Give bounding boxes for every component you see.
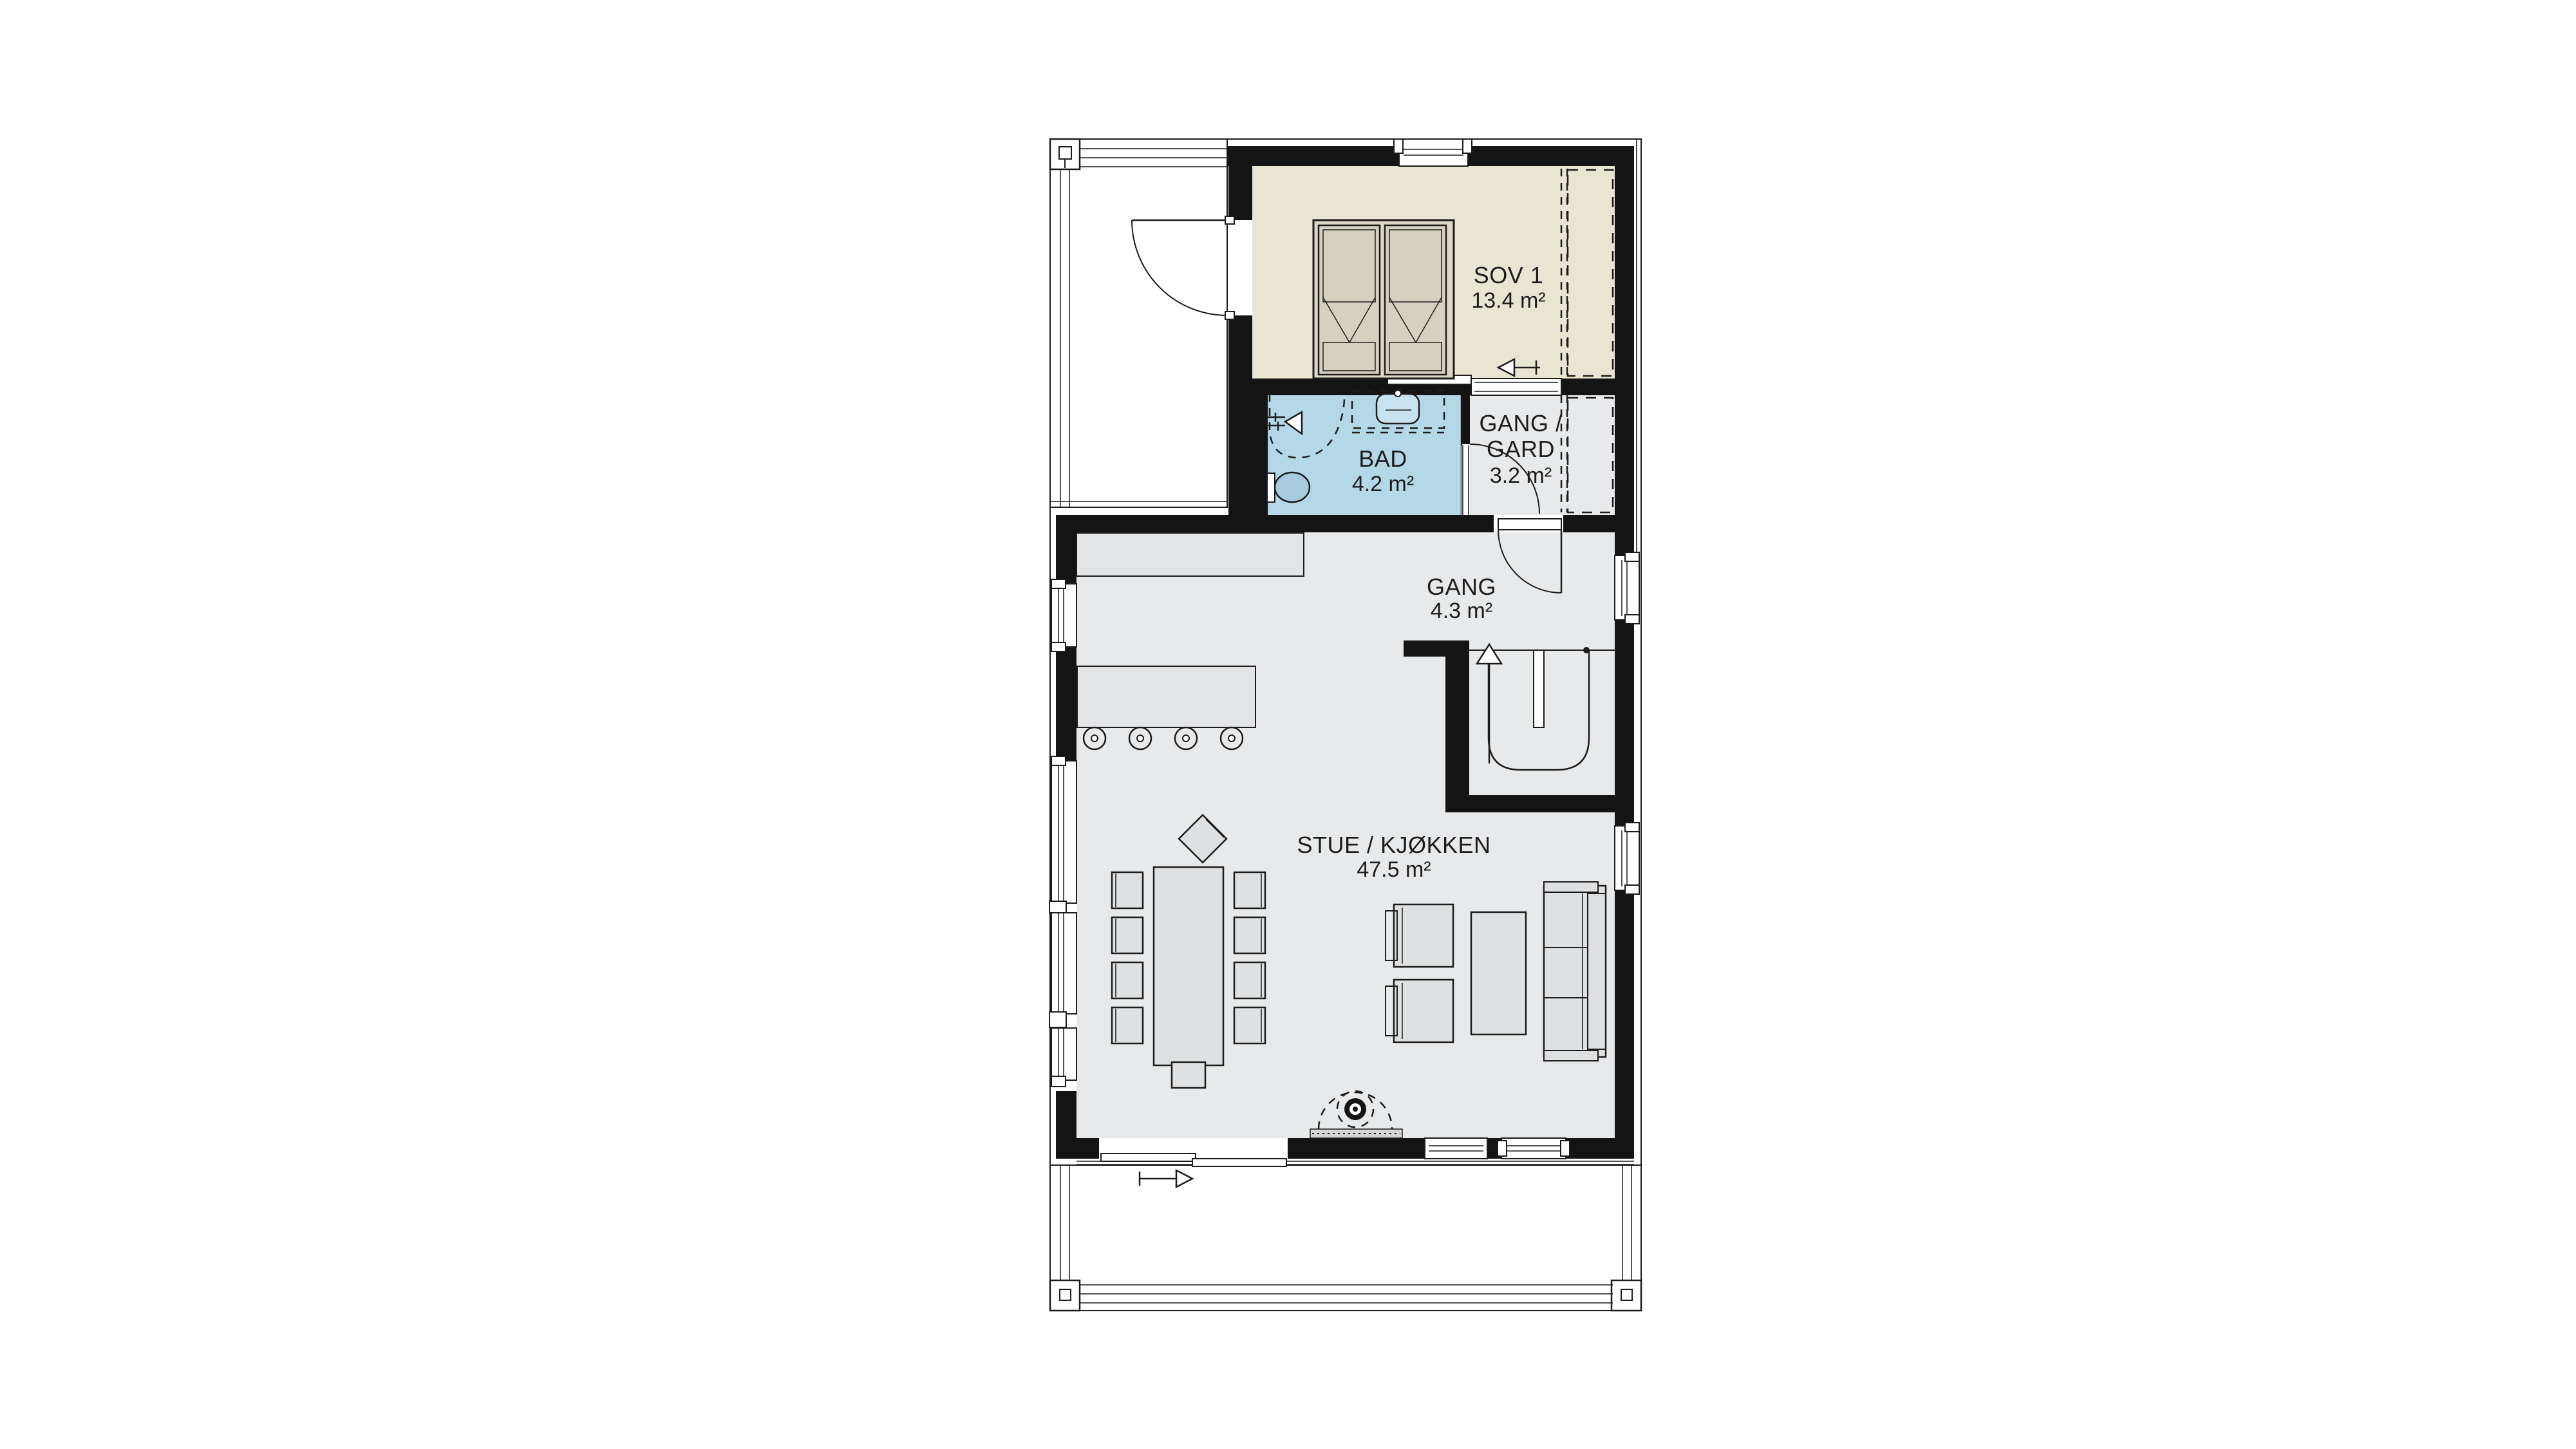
chair <box>1112 1007 1143 1043</box>
room-gang-gard-area: 3.2 m² <box>1490 463 1552 488</box>
chair <box>1112 962 1143 998</box>
chair <box>1112 872 1143 908</box>
stove-flue-core <box>1353 1107 1358 1112</box>
bed-mattress <box>1319 225 1380 375</box>
wall-bathroom-left <box>1228 379 1267 517</box>
window-left-band <box>1049 756 1076 1087</box>
room-bad-area: 4.2 m² <box>1352 472 1414 496</box>
sink-icon <box>1377 394 1419 424</box>
sofa <box>1544 882 1606 1061</box>
kitchen-counter <box>1076 533 1304 576</box>
wall-bottom-2 <box>1288 1138 1425 1159</box>
wall-top-right <box>1468 146 1630 166</box>
chair <box>1234 872 1265 908</box>
wall-ganggard-bottom-right <box>1563 515 1615 532</box>
stair-center-rail <box>1534 650 1544 727</box>
window-left-kitchen <box>1051 579 1076 651</box>
wall-stair-stub <box>1404 640 1469 657</box>
wall-bath-bottom <box>1056 515 1494 532</box>
faucet-icon <box>1395 390 1401 397</box>
window-top <box>1394 139 1472 166</box>
room-bad-label: BAD <box>1359 445 1407 472</box>
door-hinge <box>1225 312 1234 319</box>
wall-stair-bottom <box>1445 795 1634 812</box>
room-stue-area: 47.5 m² <box>1357 857 1431 882</box>
room-stue-label: STUE / KJØKKEN <box>1297 832 1490 858</box>
door-opening <box>1471 379 1561 395</box>
sliding-door-leaf <box>1101 1154 1196 1161</box>
wall-bottom-3 <box>1566 1138 1634 1159</box>
window-bottom-b <box>1498 1138 1570 1159</box>
wall-bedroom-left-lower <box>1228 315 1252 379</box>
bed-double <box>1313 220 1454 379</box>
floor-plan-canvas: SOV 1 13.4 m² BAD 4.2 m² GANG / GARD 3.2… <box>0 0 2576 1449</box>
wall-left-2 <box>1056 647 1076 761</box>
stair-newel <box>1583 647 1590 653</box>
wall-bedroom-left-upper <box>1228 166 1252 220</box>
coffee-table <box>1471 912 1526 1034</box>
kitchen-island <box>1077 666 1255 727</box>
wall-bad-ganggard <box>1462 389 1470 444</box>
armchair <box>1386 904 1453 967</box>
wall-right-lower <box>1615 890 1634 1159</box>
wall-bottom-1 <box>1056 1138 1099 1159</box>
armchair <box>1386 980 1453 1042</box>
chair <box>1234 962 1265 998</box>
chair <box>1234 1007 1265 1043</box>
chair <box>1112 917 1143 953</box>
wall-left-1 <box>1056 532 1076 584</box>
sofa-armrest <box>1544 1051 1598 1061</box>
window-right-a <box>1615 552 1639 624</box>
wall-stair-left <box>1445 640 1469 811</box>
dining-table <box>1154 867 1223 1065</box>
wall-top-left <box>1227 146 1399 166</box>
room-gang-gard-label-line1: GANG / <box>1479 410 1562 436</box>
room-sov1-area: 13.4 m² <box>1471 288 1545 313</box>
room-gang-gard-label-line2: GARD <box>1487 436 1555 462</box>
room-gang-label: GANG <box>1427 574 1496 600</box>
sliding-door-leaf <box>1192 1159 1286 1166</box>
chair <box>1234 917 1265 953</box>
end-bench <box>1172 1062 1205 1088</box>
sofa-armrest <box>1544 882 1598 892</box>
bed-mattress <box>1385 225 1446 375</box>
room-gang-area: 4.3 m² <box>1431 599 1492 623</box>
door-threshold <box>1498 519 1561 530</box>
door-hinge <box>1225 216 1234 224</box>
wall-right-upper <box>1615 146 1634 556</box>
window-bottom-a <box>1425 1138 1487 1159</box>
wall-bedroom-bottom-right <box>1561 379 1615 395</box>
window-right-b <box>1615 823 1639 894</box>
room-sov1-label: SOV 1 <box>1474 262 1544 288</box>
toilet-icon <box>1267 472 1310 502</box>
